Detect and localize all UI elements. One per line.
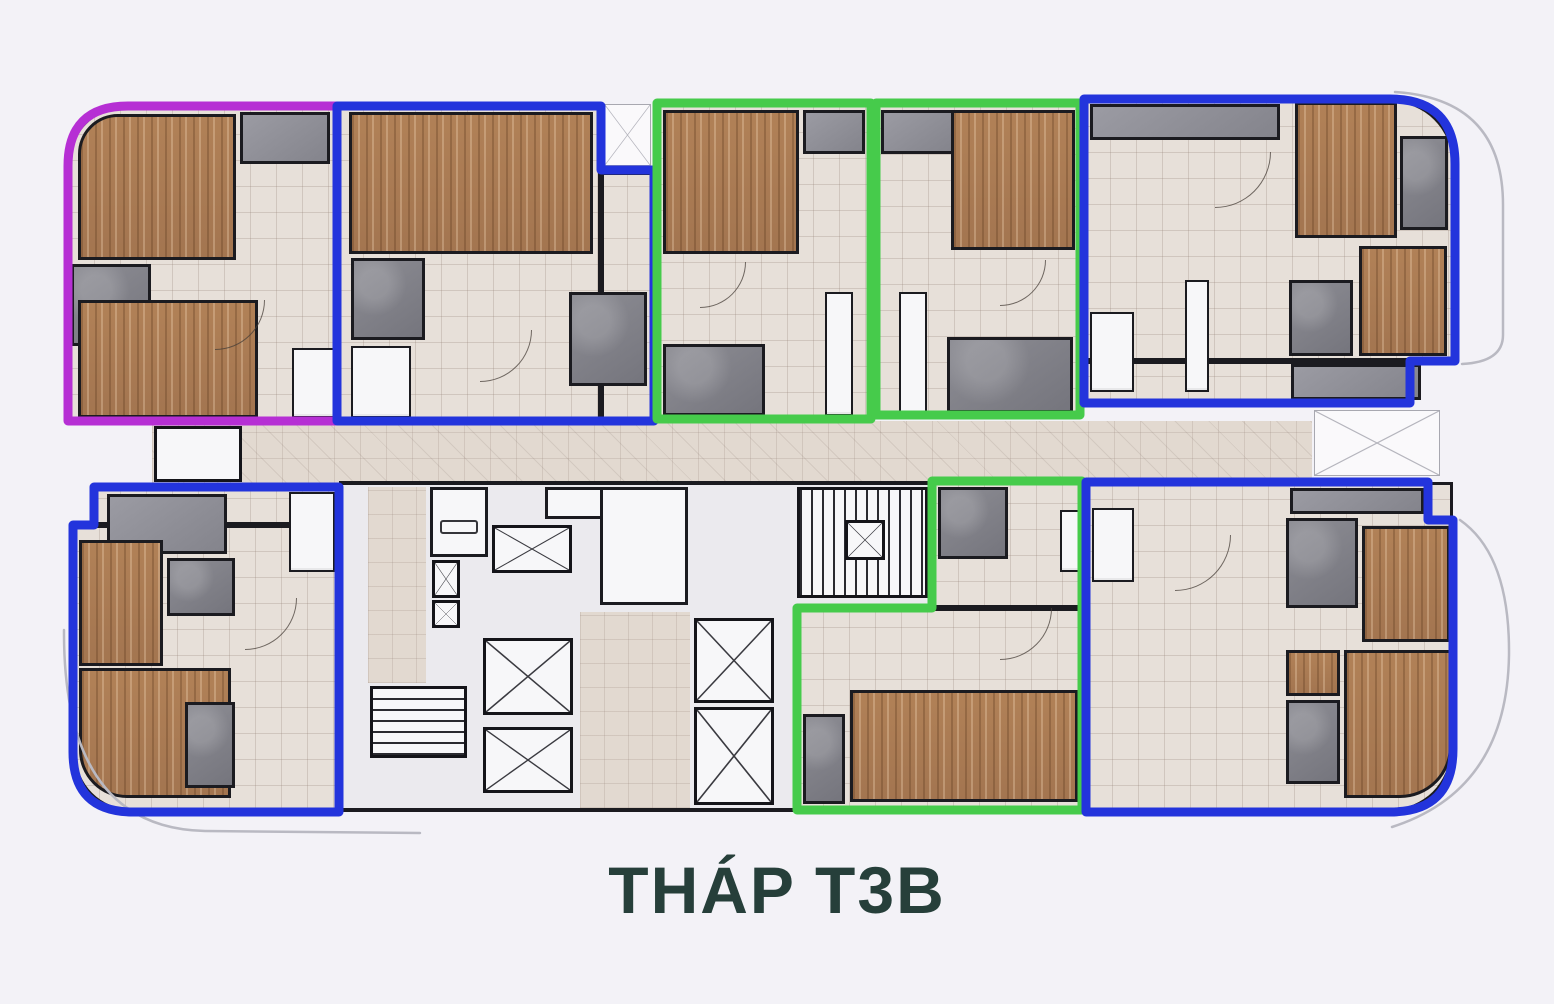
elevator-shaft (694, 618, 774, 703)
bench-fixture (440, 520, 478, 534)
stairwell (370, 686, 467, 758)
kitchen-counter (1185, 280, 1209, 392)
kitchen-counter (1060, 510, 1082, 572)
bathroom (1289, 280, 1353, 356)
x-cross-icon (1315, 411, 1439, 475)
x-cross-icon (697, 621, 771, 700)
bedroom-wood-floor (1295, 102, 1397, 238)
lift-lobby (368, 487, 426, 683)
kitchen-counter (292, 348, 336, 418)
elevator-shaft (483, 638, 573, 715)
bedroom-wood-floor (951, 110, 1075, 250)
elevator-shaft (483, 727, 573, 793)
kitchen-counter (899, 292, 927, 416)
kitchen-counter (289, 492, 335, 572)
x-cross-icon (697, 710, 771, 802)
bathroom (803, 714, 845, 804)
bathroom (947, 337, 1073, 413)
elevator-shaft (492, 525, 572, 573)
bedroom-wood-floor (663, 110, 799, 254)
stair-landing (845, 520, 885, 560)
bedroom-wood-floor (1362, 526, 1450, 642)
bedroom-wood-floor (78, 114, 236, 260)
kitchen-counter (1092, 508, 1134, 582)
kitchen-counter (351, 346, 411, 418)
x-cross-icon (486, 641, 570, 712)
lift-lobby (580, 612, 690, 808)
x-cross-icon (848, 523, 882, 557)
x-cross-icon (605, 105, 650, 165)
wardrobe-closet (1290, 488, 1424, 514)
wardrobe-closet (881, 110, 955, 154)
kitchen-counter (825, 292, 853, 416)
service-room (600, 487, 688, 605)
ac-ledge (604, 104, 651, 166)
kitchen-counter (1090, 312, 1134, 392)
bedroom-wood-floor (1344, 650, 1452, 798)
corridor-elevator (154, 426, 242, 482)
tower-title: THÁP T3B (0, 852, 1554, 928)
bathroom (351, 258, 425, 340)
x-cross-icon (495, 528, 569, 570)
bedroom-wood-floor (1286, 650, 1340, 696)
bathroom (569, 292, 647, 386)
bedroom-wood-floor (1359, 246, 1447, 356)
ac-ledge (1314, 410, 1440, 476)
wardrobe-closet (803, 110, 865, 154)
service-shaft (432, 600, 460, 628)
bedroom-wood-floor (850, 690, 1078, 802)
bedroom-wood-floor (349, 112, 593, 254)
wardrobe-closet (1291, 364, 1421, 400)
bathroom (1286, 518, 1358, 608)
bathroom (663, 344, 765, 416)
service-shaft (432, 560, 460, 598)
x-cross-icon (435, 603, 457, 625)
wardrobe-closet (1090, 104, 1280, 140)
x-cross-icon (486, 730, 570, 790)
central-corridor (152, 421, 1312, 485)
bathroom (1400, 136, 1448, 230)
bedroom-wood-floor (79, 540, 163, 666)
bathroom (1286, 700, 1340, 784)
bathroom (167, 558, 235, 616)
wardrobe-closet (240, 112, 330, 164)
elevator-shaft (694, 707, 774, 805)
bathroom (938, 487, 1008, 559)
x-cross-icon (435, 563, 457, 595)
bathroom (185, 702, 235, 788)
